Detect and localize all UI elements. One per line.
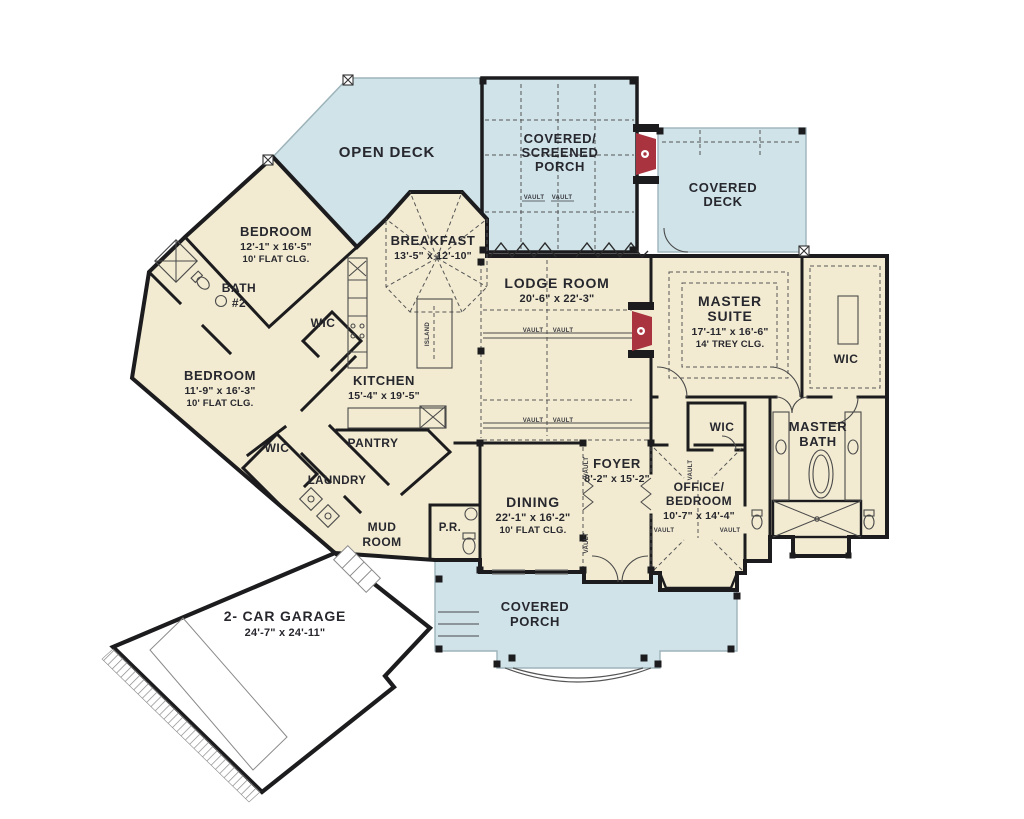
label-bedroom-top-dims: 12'-1" x 16'-5"	[240, 241, 312, 253]
label-open-deck: OPEN DECK	[339, 144, 435, 161]
label-master-suite-dims: 17'-11" x 16'-6"	[691, 326, 768, 338]
label-office-vault-2: VAULT	[720, 528, 741, 534]
label-wic-office: WIC	[710, 420, 735, 434]
label-master-suite-clg: 14' TREY CLG.	[696, 339, 765, 350]
label-screened-porch-1: COVERED/	[524, 131, 597, 146]
label-lodge-vault-1: VAULT	[523, 328, 544, 334]
label-master-suite-2: SUITE	[707, 308, 752, 324]
label-wic-master: WIC	[834, 352, 859, 366]
label-office-vault-1: VAULT	[654, 528, 675, 534]
label-garage-dims: 24'-7" x 24'-11"	[245, 627, 326, 639]
label-lodge-dims: 20'-6" x 22'-3"	[520, 293, 595, 305]
label-garage: 2- CAR GARAGE	[224, 608, 346, 624]
label-screened-porch-2: SCREENED	[521, 145, 598, 160]
label-covered-deck-2: DECK	[703, 194, 742, 209]
label-porch-vault-2: VAULT	[552, 195, 573, 201]
label-lodge-vault-2: VAULT	[553, 328, 574, 334]
label-office-vault-3: VAULT	[688, 460, 694, 481]
label-bedroom-left-dims: 11'-9" x 16'-3"	[184, 385, 255, 397]
label-office-dims: 10'-7" x 14'-4"	[663, 510, 735, 522]
label-porch-vault-1: VAULT	[524, 195, 545, 201]
label-dining: DINING	[506, 494, 560, 510]
label-kitchen-dims: 15'-4" x 19'-5"	[348, 390, 420, 402]
label-office-1: OFFICE/	[674, 480, 725, 494]
label-lodge-vault-4: VAULT	[553, 418, 574, 424]
label-screened-porch-3: PORCH	[535, 159, 585, 174]
label-breakfast: BREAKFAST	[391, 233, 476, 248]
label-master-suite-1: MASTER	[698, 293, 762, 309]
label-mud-room-1: MUD	[368, 520, 397, 534]
floor-plan-drawing: OPEN DECK COVERED/ SCREENED PORCH VAULT …	[0, 0, 1024, 819]
garage-area	[113, 553, 430, 792]
label-dining-clg: 10' FLAT CLG.	[500, 525, 567, 536]
label-master-bath-2: BATH	[799, 434, 837, 449]
label-covered-porch-2: PORCH	[510, 614, 560, 629]
label-foyer-dims: 8'-2" x 15'-2"	[584, 473, 650, 485]
label-pantry: PANTRY	[348, 436, 399, 450]
label-powder-room: P.R.	[439, 522, 461, 534]
label-lodge-vault-3: VAULT	[523, 418, 544, 424]
label-covered-deck-1: COVERED	[689, 180, 758, 195]
label-foyer-vault-1: VAULT	[584, 457, 590, 478]
label-lodge-room: LODGE ROOM	[504, 275, 609, 291]
label-island: ISLAND	[425, 322, 431, 346]
label-laundry: LAUNDRY	[308, 475, 367, 487]
label-dining-dims: 22'-1" x 16'-2"	[496, 512, 571, 524]
label-bedroom-top: BEDROOM	[240, 224, 312, 239]
label-master-bath-1: MASTER	[789, 419, 848, 434]
label-wic-bedroom-top: WIC	[311, 316, 336, 330]
label-bedroom-top-clg: 10' FLAT CLG.	[243, 254, 310, 265]
label-bedroom-left-clg: 10' FLAT CLG.	[187, 398, 254, 409]
label-bath2-2: #2	[232, 296, 246, 310]
label-bedroom-left: BEDROOM	[184, 368, 256, 383]
label-foyer: FOYER	[593, 456, 641, 471]
label-foyer-vault-2: VAULT	[584, 533, 590, 554]
label-breakfast-dims: 13'-5" x 12'-10"	[394, 250, 472, 262]
label-bath2-1: BATH	[222, 281, 256, 295]
label-office-2: BEDROOM	[666, 494, 732, 508]
label-mud-room-2: ROOM	[362, 535, 401, 549]
label-covered-porch-1: COVERED	[501, 599, 570, 614]
garage-structure	[102, 546, 430, 802]
label-wic-bedroom-left: WIC	[265, 441, 290, 455]
floor-plan-page: OPEN DECK COVERED/ SCREENED PORCH VAULT …	[0, 0, 1024, 819]
label-kitchen: KITCHEN	[353, 373, 415, 388]
